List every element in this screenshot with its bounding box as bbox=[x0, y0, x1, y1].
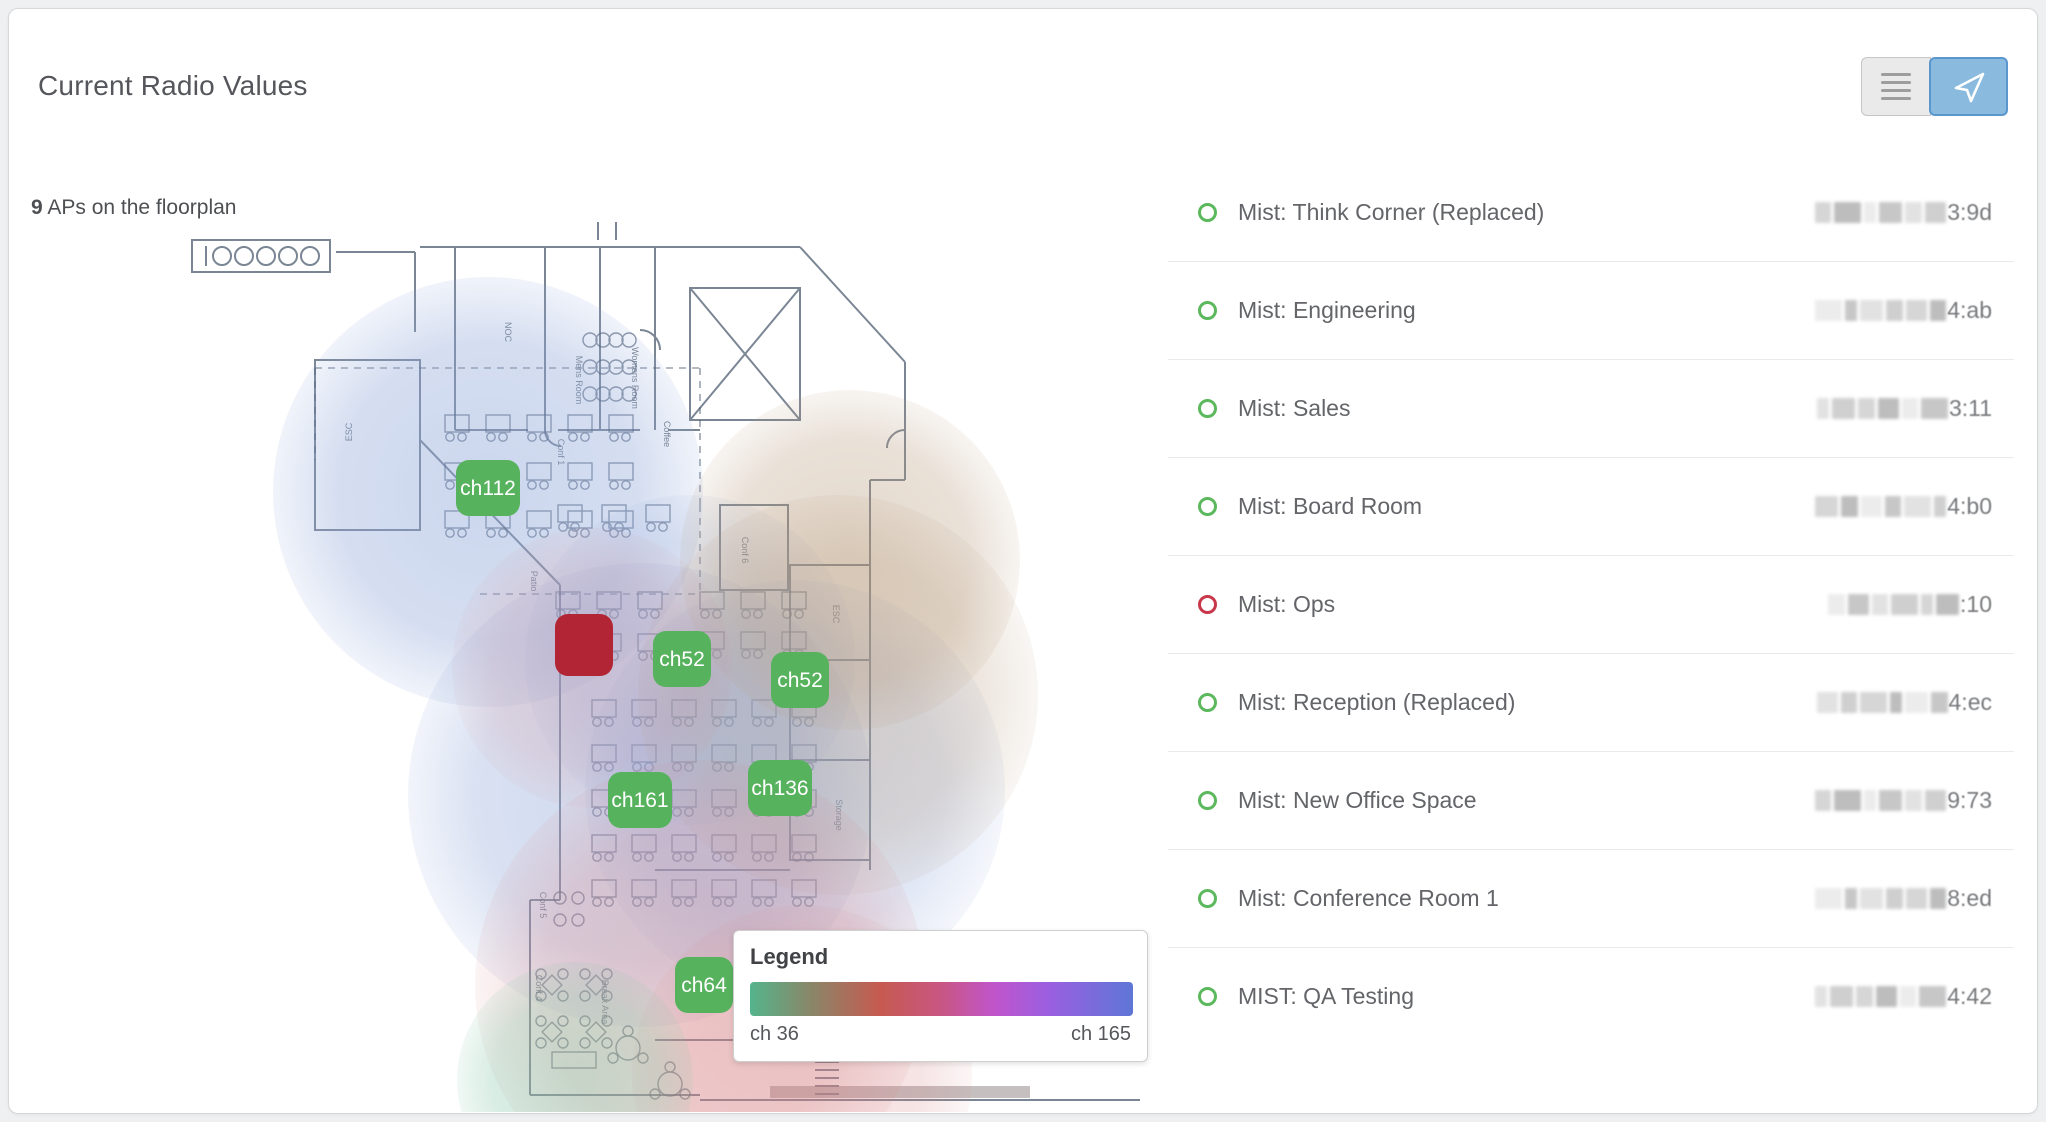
ap-marker-ch112[interactable]: ch112 bbox=[456, 460, 520, 516]
mac-redacted-blocks bbox=[1815, 300, 1946, 321]
ap-count-label: 9 APs on the floorplan bbox=[31, 196, 237, 220]
status-connected-icon bbox=[1198, 791, 1217, 810]
ap-list-row[interactable]: Mist: Ops:10 bbox=[1168, 556, 2014, 654]
ap-name: Mist: Think Corner (Replaced) bbox=[1238, 199, 1544, 226]
ap-count-number: 9 bbox=[31, 196, 43, 219]
mac-suffix: :10 bbox=[1960, 591, 1992, 618]
ap-name: Mist: New Office Space bbox=[1238, 787, 1477, 814]
mac-suffix: 4:ab bbox=[1947, 297, 1992, 324]
ap-marker-label: ch136 bbox=[751, 777, 808, 800]
mac-suffix: 4:b0 bbox=[1947, 493, 1992, 520]
ap-marker-ch52[interactable]: ch52 bbox=[771, 652, 829, 708]
list-lines-icon bbox=[1881, 73, 1911, 100]
ap-name: Mist: Engineering bbox=[1238, 297, 1416, 324]
ap-name: Mist: Sales bbox=[1238, 395, 1350, 422]
ap-list-row[interactable]: Mist: Reception (Replaced)4:ec bbox=[1168, 654, 2014, 752]
status-connected-icon bbox=[1198, 693, 1217, 712]
mac-suffix: 4:42 bbox=[1947, 983, 1992, 1010]
ap-count-text: APs on the floorplan bbox=[43, 196, 237, 219]
status-connected-icon bbox=[1198, 203, 1217, 222]
ap-list-row[interactable]: Mist: Sales3:11 bbox=[1168, 360, 2014, 458]
ap-name: Mist: Reception (Replaced) bbox=[1238, 689, 1515, 716]
ap-name: Mist: Conference Room 1 bbox=[1238, 885, 1499, 912]
ap-marker-ch64[interactable]: ch64 bbox=[675, 957, 733, 1013]
status-connected-icon bbox=[1198, 301, 1217, 320]
ap-name: Mist: Board Room bbox=[1238, 493, 1422, 520]
ap-mac: 9:73 bbox=[1815, 787, 1992, 814]
status-connected-icon bbox=[1198, 497, 1217, 516]
mac-suffix: 3:9d bbox=[1947, 199, 1992, 226]
ap-mac: 4:ab bbox=[1815, 297, 1992, 324]
legend-panel: Legend ch 36 ch 165 bbox=[733, 930, 1148, 1062]
ap-name: MIST: QA Testing bbox=[1238, 983, 1414, 1010]
ap-marker-ch52[interactable]: ch52 bbox=[653, 631, 711, 687]
mac-suffix: 8:ed bbox=[1947, 885, 1992, 912]
select-cursor-icon bbox=[1951, 69, 1987, 105]
status-connected-icon bbox=[1198, 399, 1217, 418]
ap-list-row[interactable]: Mist: Think Corner (Replaced)3:9d bbox=[1168, 164, 2014, 262]
ap-mac: 4:ec bbox=[1817, 689, 1992, 716]
mac-redacted-blocks bbox=[1815, 986, 1946, 1007]
status-connected-icon bbox=[1198, 889, 1217, 908]
mac-suffix: 9:73 bbox=[1947, 787, 1992, 814]
ap-mac: 3:9d bbox=[1815, 199, 1992, 226]
ap-mac: 4:42 bbox=[1815, 983, 1992, 1010]
mac-redacted-blocks bbox=[1815, 790, 1946, 811]
ap-list-row[interactable]: Mist: Conference Room 18:ed bbox=[1168, 850, 2014, 948]
legend-max-label: ch 165 bbox=[1071, 1023, 1131, 1046]
ap-marker-label: ch52 bbox=[777, 669, 823, 692]
mac-redacted-blocks bbox=[1815, 888, 1946, 909]
ap-marker-ch161[interactable]: ch161 bbox=[608, 772, 672, 828]
ap-name: Mist: Ops bbox=[1238, 591, 1335, 618]
mac-suffix: 3:11 bbox=[1949, 395, 1992, 422]
map-view-button[interactable] bbox=[1929, 57, 2008, 116]
ap-list-row[interactable]: Mist: New Office Space9:73 bbox=[1168, 752, 2014, 850]
ap-mac: 3:11 bbox=[1817, 395, 1992, 422]
ap-list: Mist: Think Corner (Replaced)3:9dMist: E… bbox=[1168, 164, 2014, 1045]
mac-redacted-blocks bbox=[1815, 496, 1946, 517]
legend-title: Legend bbox=[750, 944, 1131, 970]
legend-min-label: ch 36 bbox=[750, 1023, 799, 1046]
mac-redacted-blocks bbox=[1828, 594, 1959, 615]
ap-list-row[interactable]: Mist: Board Room4:b0 bbox=[1168, 458, 2014, 556]
ap-marker-ch136[interactable]: ch136 bbox=[748, 760, 812, 816]
ap-list-row[interactable]: Mist: Engineering4:ab bbox=[1168, 262, 2014, 360]
ap-list-row[interactable]: MIST: QA Testing4:42 bbox=[1168, 948, 2014, 1045]
ap-mac: :10 bbox=[1828, 591, 1992, 618]
legend-gradient-bar bbox=[750, 982, 1133, 1016]
ap-marker-label: ch161 bbox=[611, 789, 668, 812]
ap-marker-disconnected[interactable] bbox=[555, 614, 613, 676]
ap-marker-label: ch52 bbox=[659, 648, 705, 671]
status-connected-icon bbox=[1198, 987, 1217, 1006]
ap-mac: 8:ed bbox=[1815, 885, 1992, 912]
mac-redacted-blocks bbox=[1817, 692, 1948, 713]
status-disconnected-icon bbox=[1198, 595, 1217, 614]
mac-redacted-blocks bbox=[1817, 398, 1948, 419]
mac-suffix: 4:ec bbox=[1949, 689, 1992, 716]
ap-marker-label: ch112 bbox=[460, 477, 516, 500]
ap-mac: 4:b0 bbox=[1815, 493, 1992, 520]
ap-marker-label: ch64 bbox=[681, 974, 727, 997]
mac-redacted-blocks bbox=[1815, 202, 1946, 223]
list-view-button[interactable] bbox=[1861, 57, 1931, 116]
page-title: Current Radio Values bbox=[38, 70, 308, 102]
view-toggle bbox=[1861, 57, 2008, 116]
